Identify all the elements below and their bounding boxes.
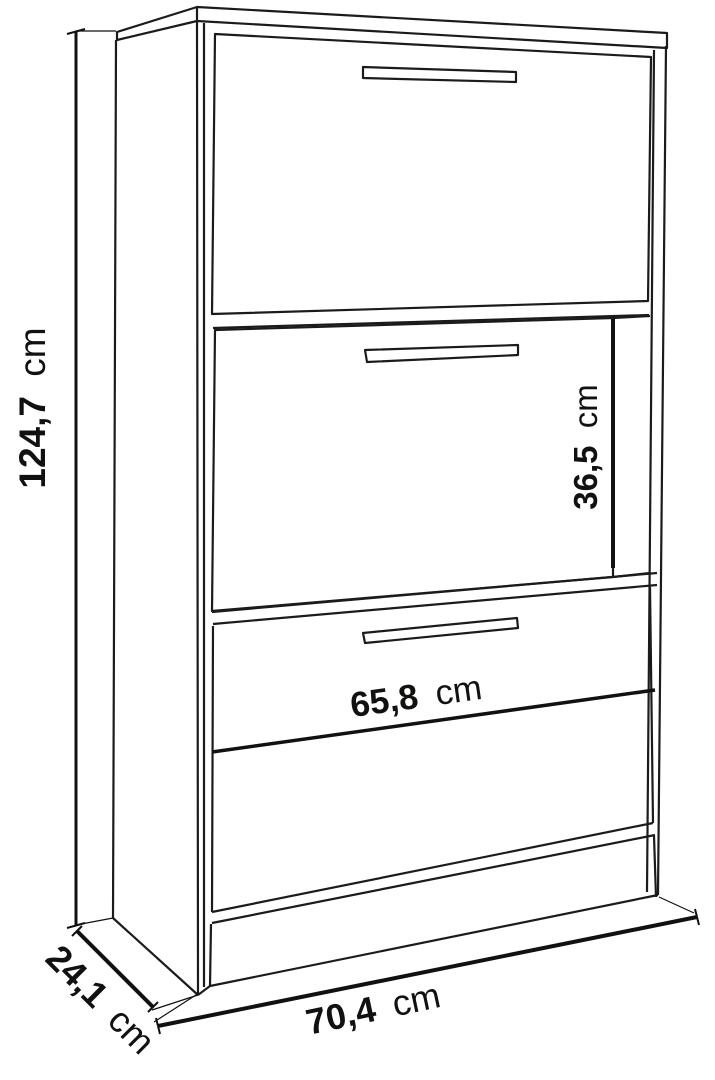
inner-width-value: 65,8: [348, 676, 421, 724]
inner-height-dimension-label: 36,5 cm: [567, 384, 604, 509]
width-unit: cm: [388, 974, 443, 1024]
door-handle-2-icon: [365, 345, 518, 362]
inner-height-value: 36,5: [567, 445, 604, 509]
top-panel: [117, 7, 667, 48]
dimension-lines: [67, 29, 699, 1034]
furniture-dimension-diagram: 124,7 cm 36,5 cm 65,8 cm 70,4 cm 24,1 cm: [0, 0, 715, 1080]
inner-height-unit: cm: [567, 384, 604, 428]
open-compartment-edges: [613, 316, 650, 577]
left-side-panel: [113, 21, 204, 995]
door-handle-1-icon: [363, 67, 516, 82]
height-value: 124,7: [12, 396, 53, 489]
inner-width-dimension: [212, 690, 655, 752]
shelf-band-2: [212, 573, 657, 624]
inner-width-unit: cm: [433, 667, 485, 712]
height-dimension-label: 124,7 cm: [12, 327, 53, 488]
flap-door-2: [212, 318, 613, 611]
depth-value: 24,1: [38, 936, 117, 1015]
shoe-cabinet-diagram-svg: 124,7 cm 36,5 cm 65,8 cm 70,4 cm 24,1 cm: [0, 0, 715, 1080]
door-handle-3-icon: [363, 618, 518, 643]
height-unit: cm: [12, 327, 53, 376]
height-dimension: [67, 29, 116, 928]
flap-door-3: [212, 587, 655, 923]
depth-unit: cm: [101, 999, 164, 1062]
flap-door-1: [212, 34, 651, 314]
shelf-band-1: [213, 315, 649, 328]
